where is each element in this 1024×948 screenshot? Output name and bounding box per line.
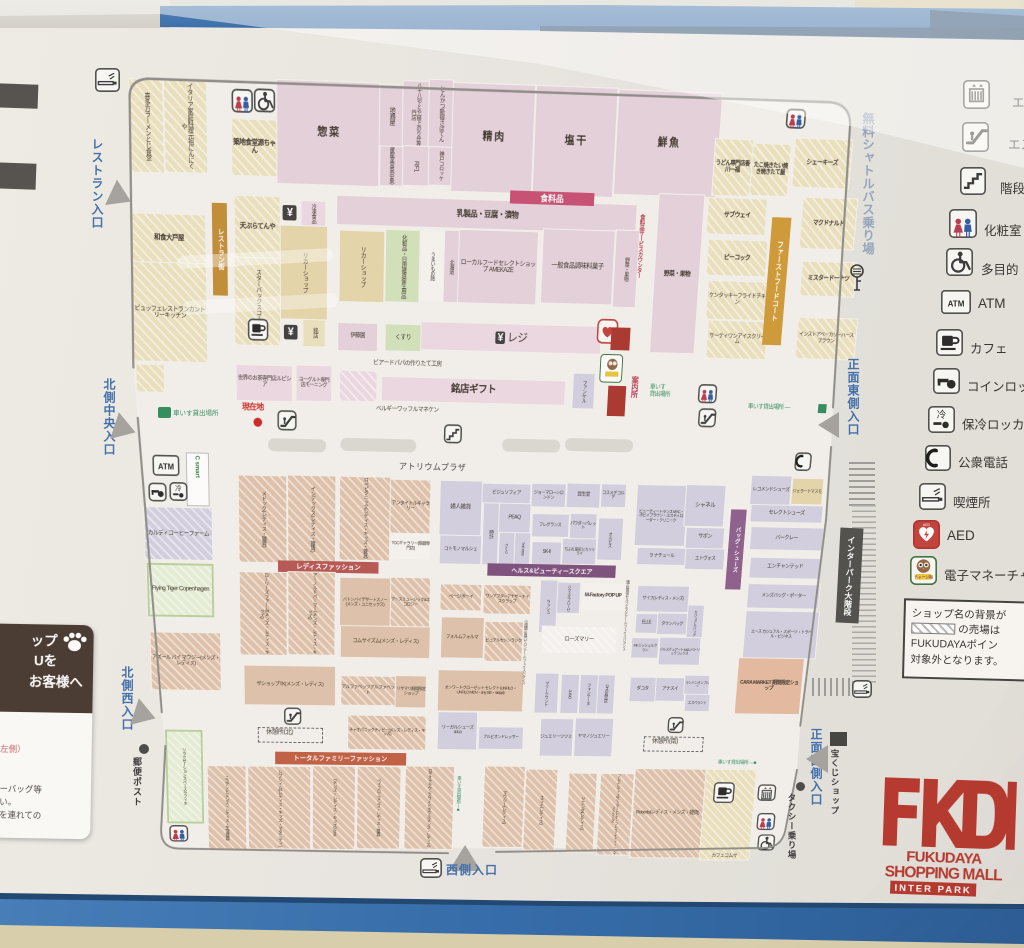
svg-text:ATM: ATM [948,299,965,308]
svg-text:冷: 冷 [937,409,947,421]
svg-text:チャージ機: チャージ機 [914,575,933,580]
svg-text:INTER PARK: INTER PARK [894,883,972,897]
svg-text:AED: AED [923,523,930,527]
